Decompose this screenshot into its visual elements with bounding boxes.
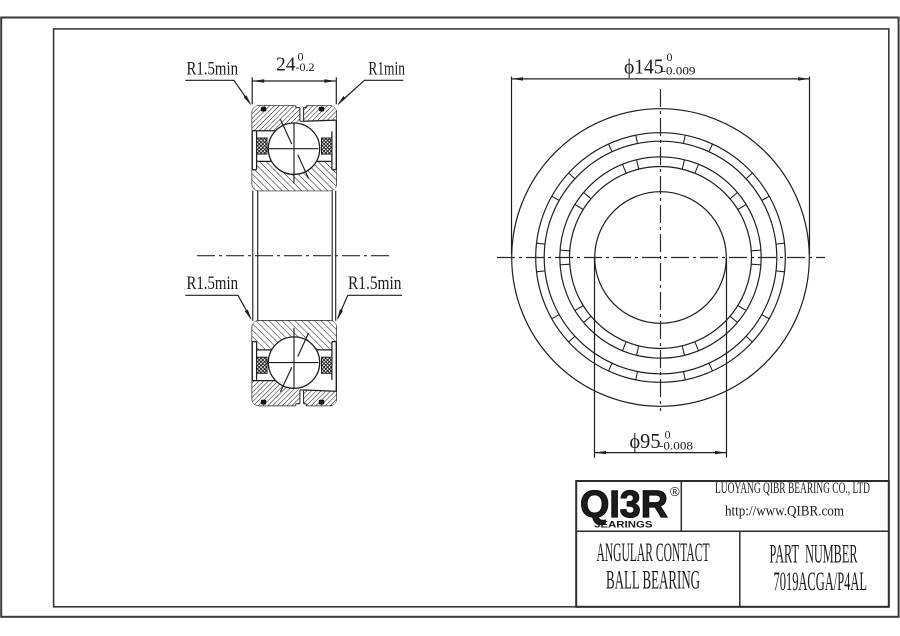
svg-text:-0.009: -0.009: [662, 63, 696, 77]
svg-text:ϕ145: ϕ145: [624, 54, 664, 78]
svg-text:BALL BEARING: BALL BEARING: [606, 565, 700, 594]
svg-text:3EARINGS: 3EARINGS: [594, 520, 653, 531]
svg-text:R1min: R1min: [368, 59, 405, 80]
svg-text:R1.5min: R1.5min: [187, 273, 239, 294]
svg-text:-0.2: -0.2: [296, 60, 315, 74]
svg-text:-0.008: -0.008: [659, 439, 693, 453]
svg-text:R1.5min: R1.5min: [348, 273, 402, 294]
svg-text:LUOYANG QIBR BEARING CO., LTD: LUOYANG QIBR BEARING CO., LTD: [715, 480, 870, 497]
svg-text:R1.5min: R1.5min: [187, 59, 239, 80]
svg-text:7019ACGA/P4AL: 7019ACGA/P4AL: [774, 567, 868, 596]
svg-text:ANGULAR CONTACT: ANGULAR CONTACT: [597, 538, 710, 567]
svg-text:PART NUMBER: PART NUMBER: [770, 540, 858, 569]
svg-text:24: 24: [276, 53, 296, 75]
svg-text:http://www.QIBR.com: http://www.QIBR.com: [725, 504, 844, 520]
svg-text:0: 0: [667, 50, 673, 64]
svg-text:ϕ95: ϕ95: [630, 429, 661, 453]
svg-text:®: ®: [670, 484, 680, 499]
